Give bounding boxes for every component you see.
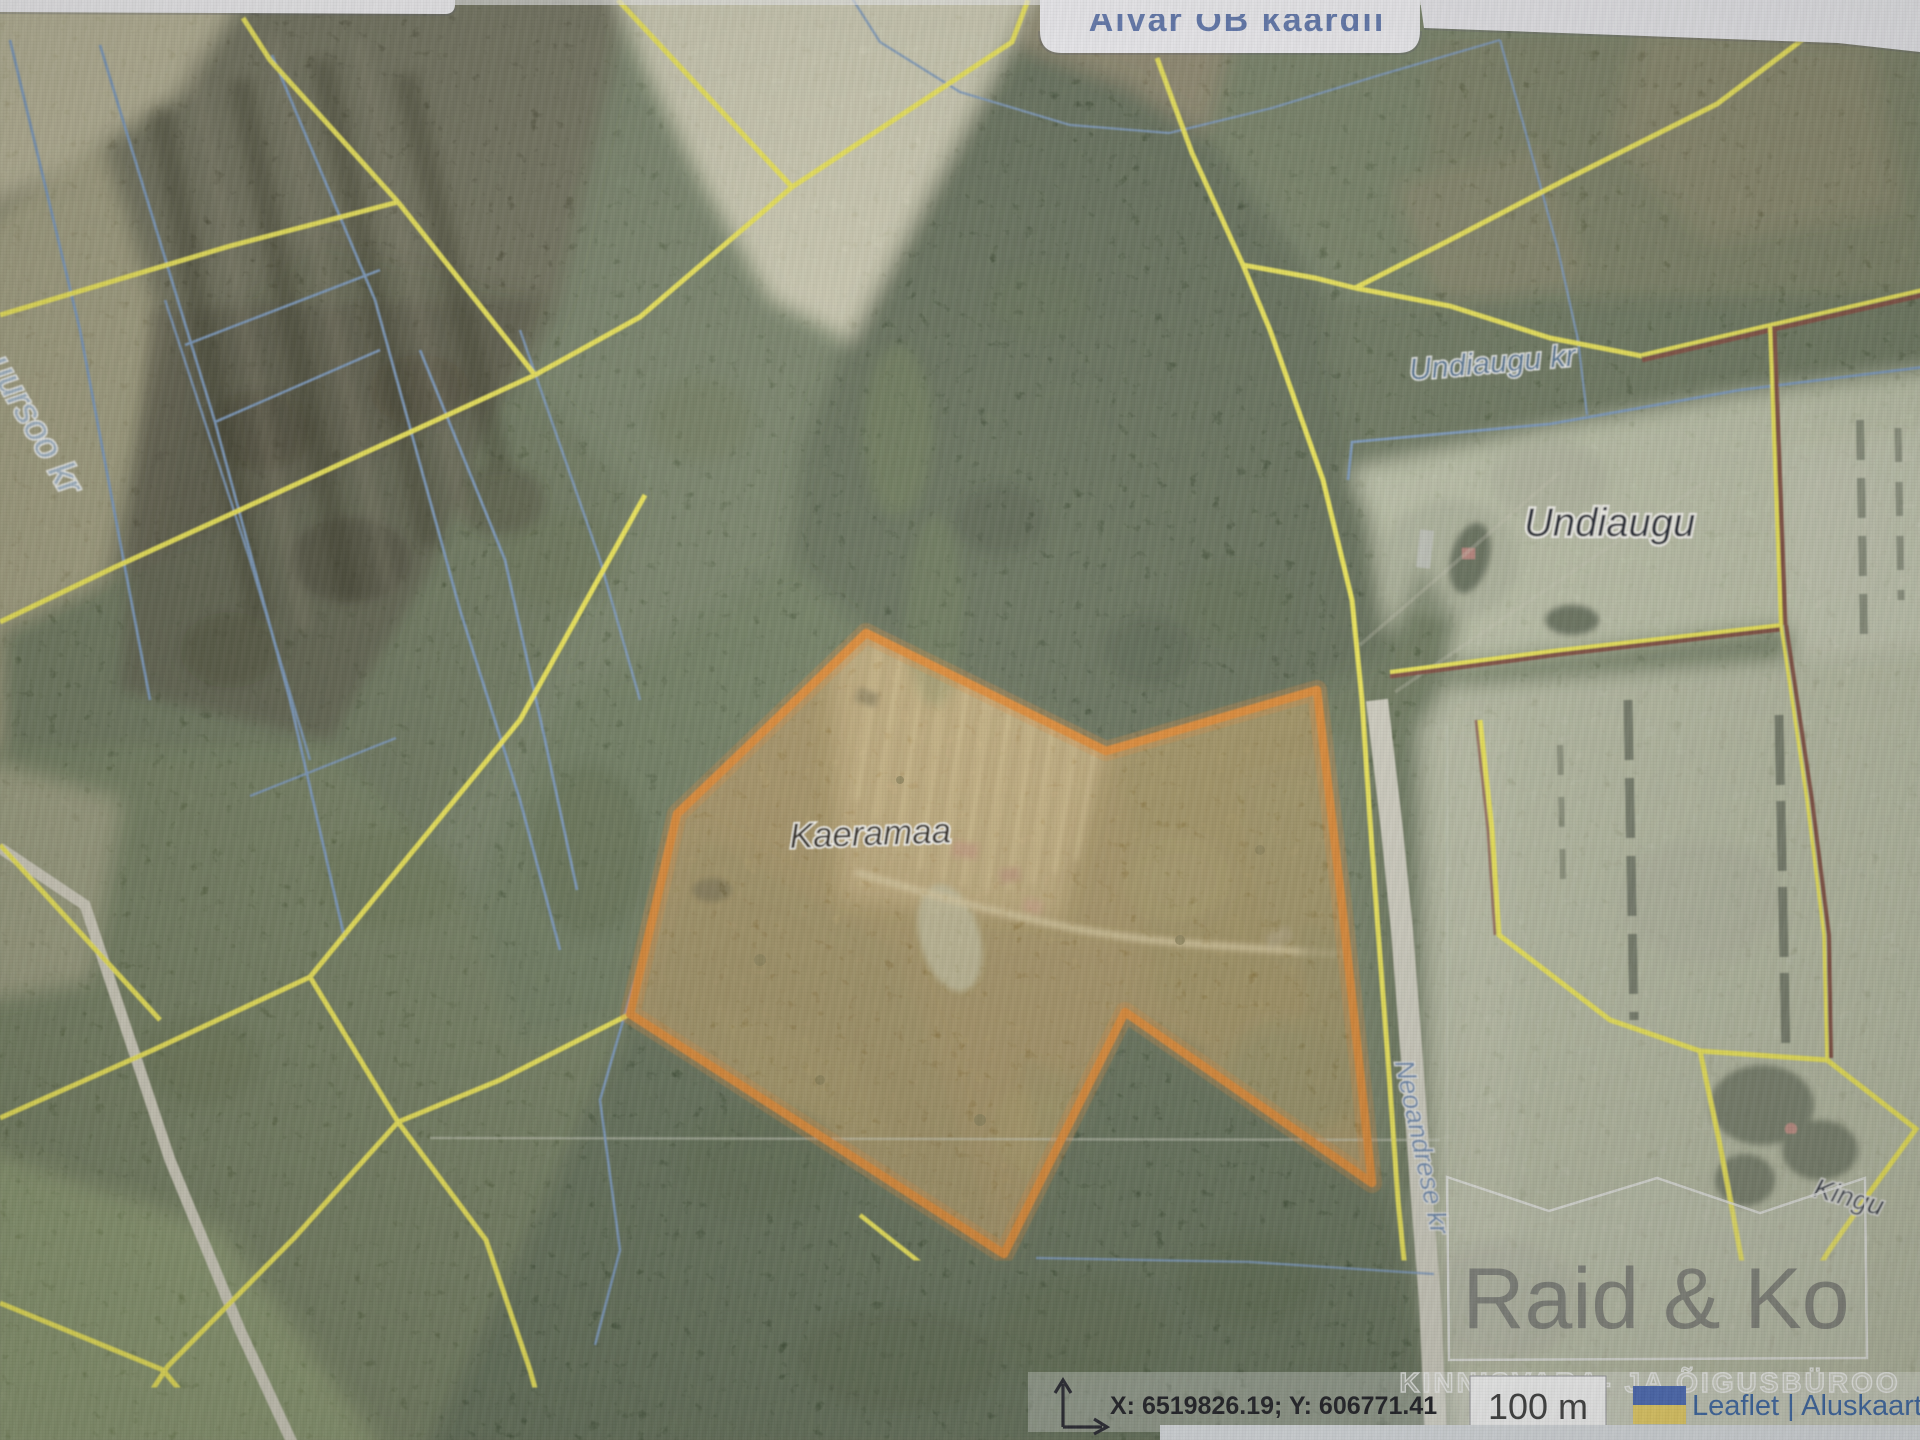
svg-text:Kaeramaa: Kaeramaa	[789, 811, 952, 856]
svg-text:100 m: 100 m	[1488, 1386, 1588, 1427]
svg-text:Leaflet | Aluskaart: Leaflet | Aluskaart	[1692, 1390, 1920, 1422]
svg-text:Raid & Ko: Raid & Ko	[1462, 1251, 1849, 1347]
svg-text:Undiaugu: Undiaugu	[1524, 501, 1695, 545]
svg-text:X: 6519826.19; Y: 606771.41: X: 6519826.19; Y: 606771.41	[1110, 1392, 1437, 1420]
